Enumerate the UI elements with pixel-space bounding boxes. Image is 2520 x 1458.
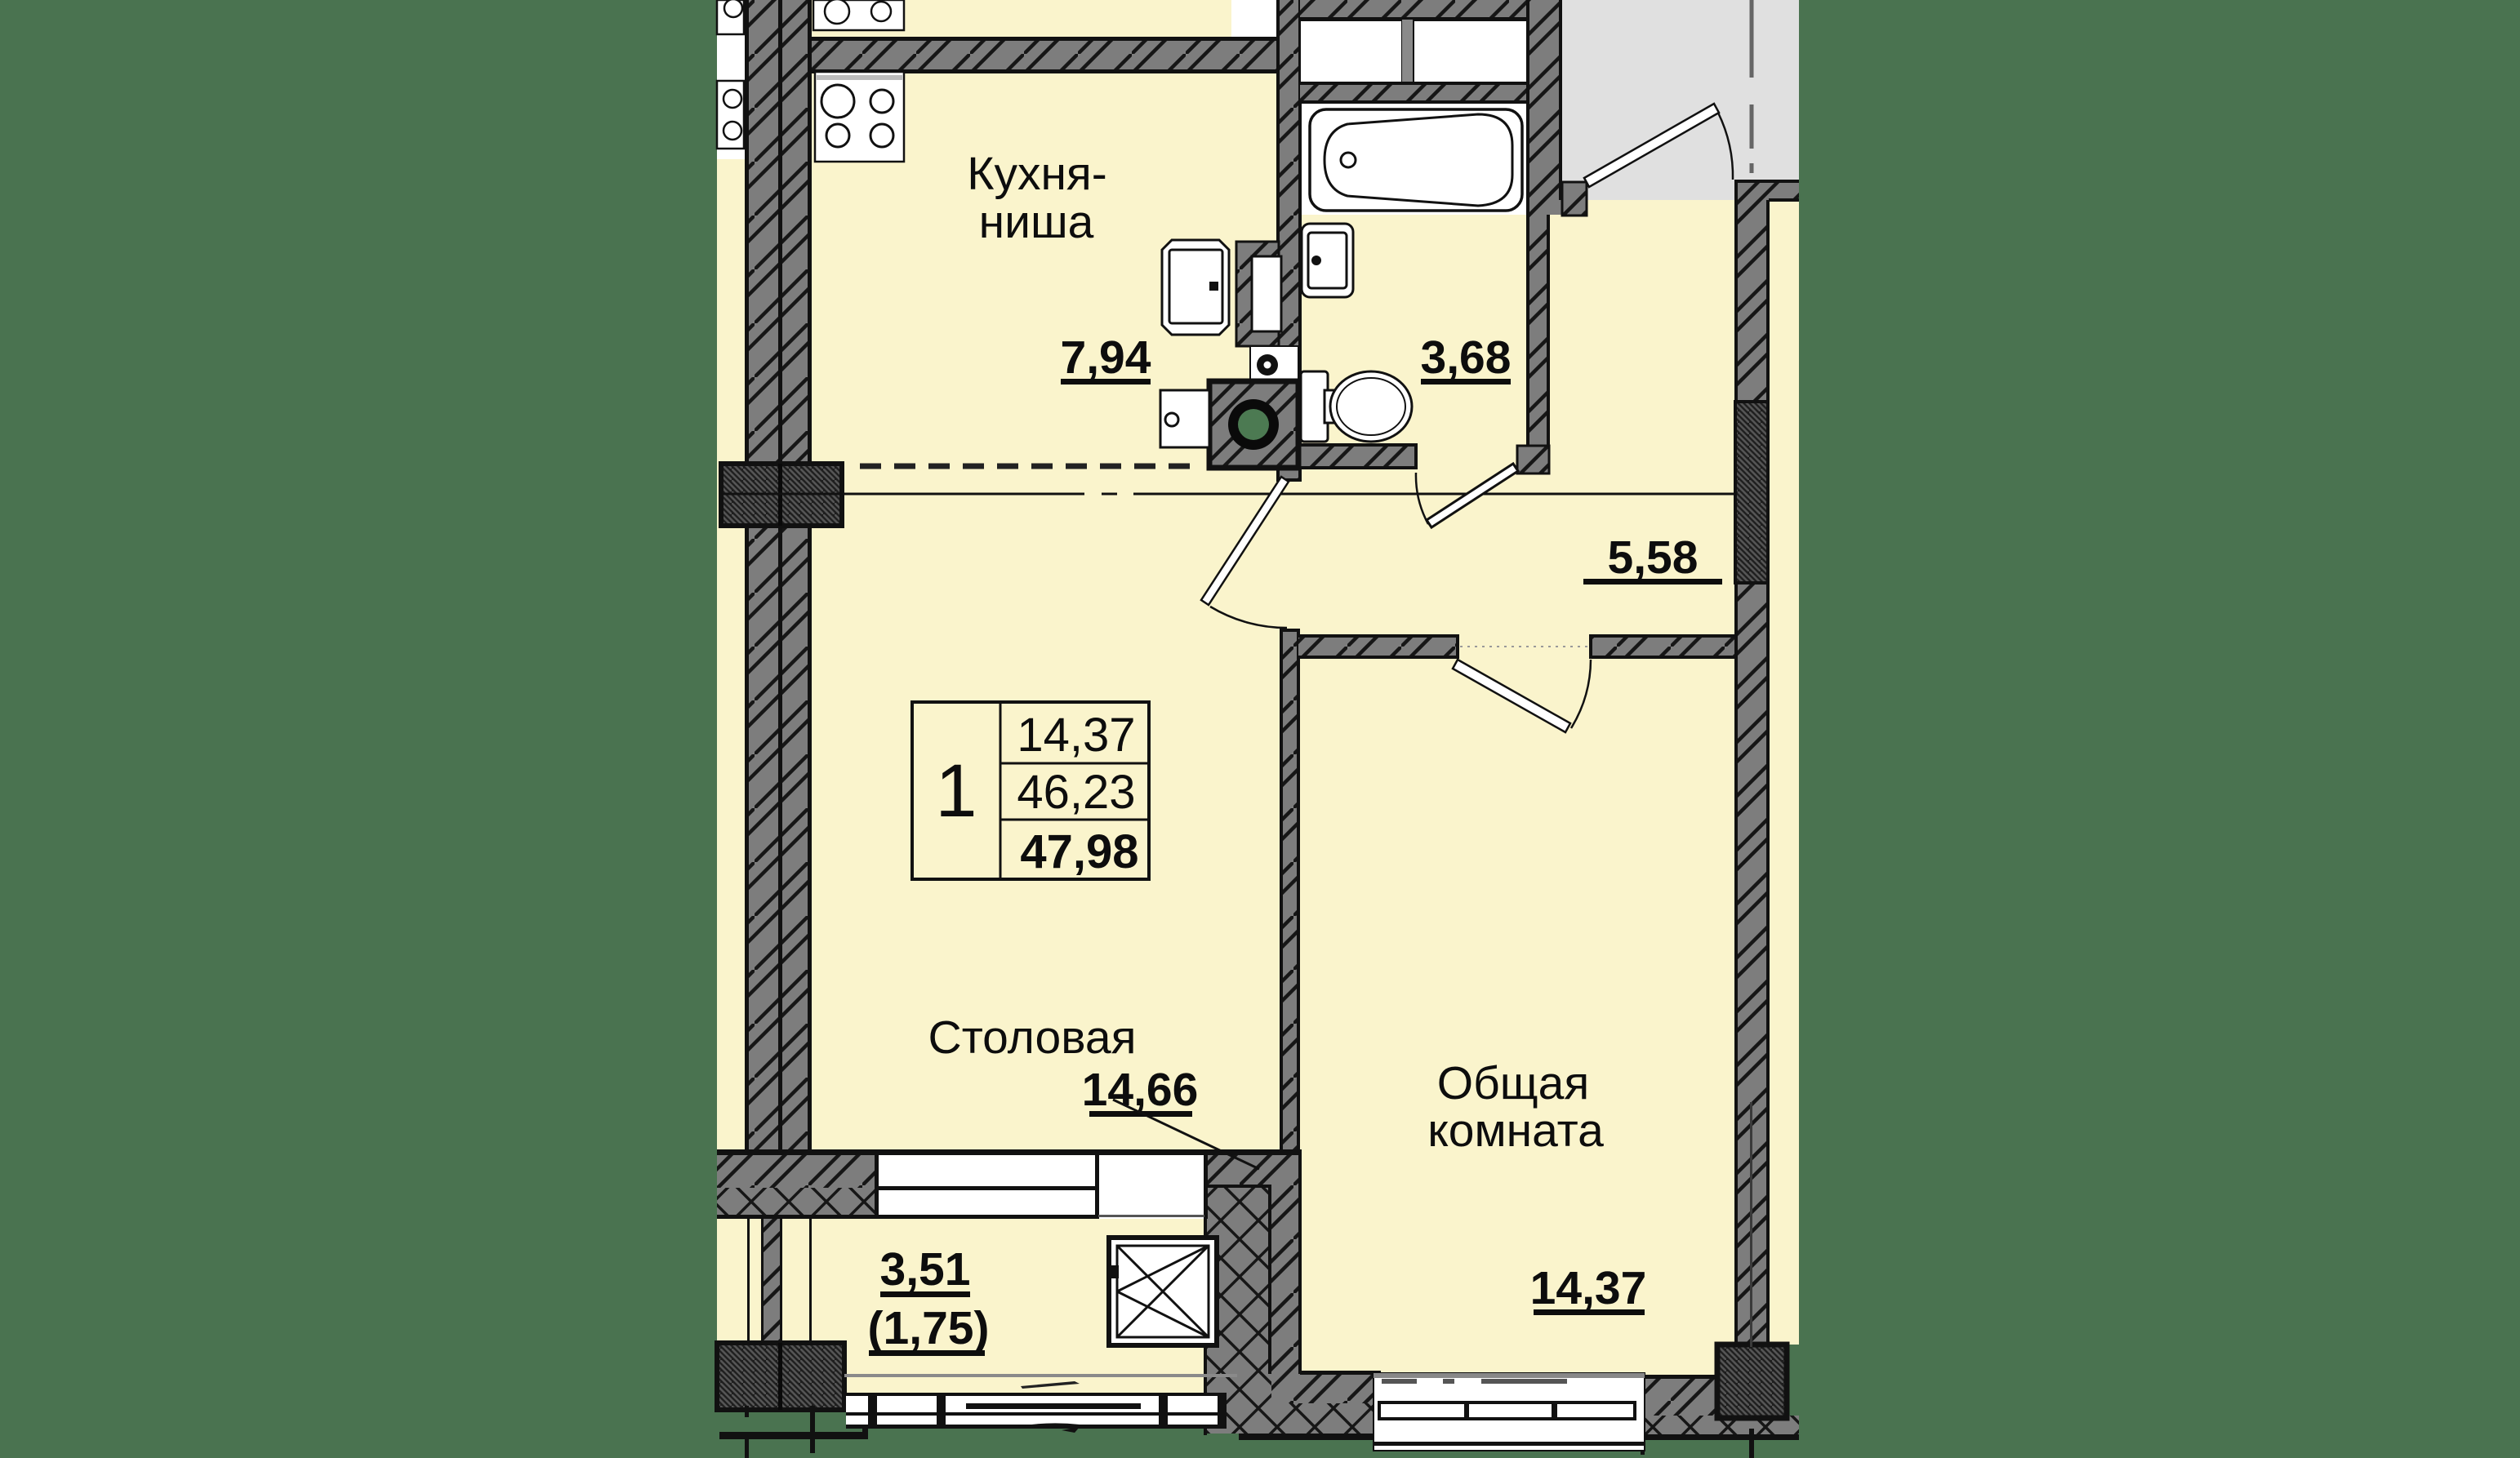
svg-text:14,37: 14,37 bbox=[1017, 709, 1135, 762]
svg-text:7,94: 7,94 bbox=[1061, 331, 1151, 384]
svg-text:ниша: ниша bbox=[979, 196, 1094, 248]
svg-text:(1,75): (1,75) bbox=[868, 1302, 990, 1354]
svg-text:14,66: 14,66 bbox=[1082, 1064, 1199, 1116]
svg-text:47,98: 47,98 bbox=[1020, 825, 1138, 878]
svg-text:Столовая: Столовая bbox=[928, 1011, 1137, 1064]
svg-text:Кухня-: Кухня- bbox=[967, 148, 1107, 200]
svg-text:5,58: 5,58 bbox=[1608, 531, 1699, 584]
svg-text:комната: комната bbox=[1427, 1105, 1604, 1157]
svg-text:3,51: 3,51 bbox=[880, 1243, 971, 1296]
svg-text:14,37: 14,37 bbox=[1530, 1262, 1647, 1314]
svg-text:3,68: 3,68 bbox=[1421, 331, 1512, 384]
svg-text:1: 1 bbox=[935, 749, 977, 833]
svg-text:46,23: 46,23 bbox=[1017, 766, 1135, 819]
svg-text:Общая: Общая bbox=[1437, 1057, 1589, 1109]
